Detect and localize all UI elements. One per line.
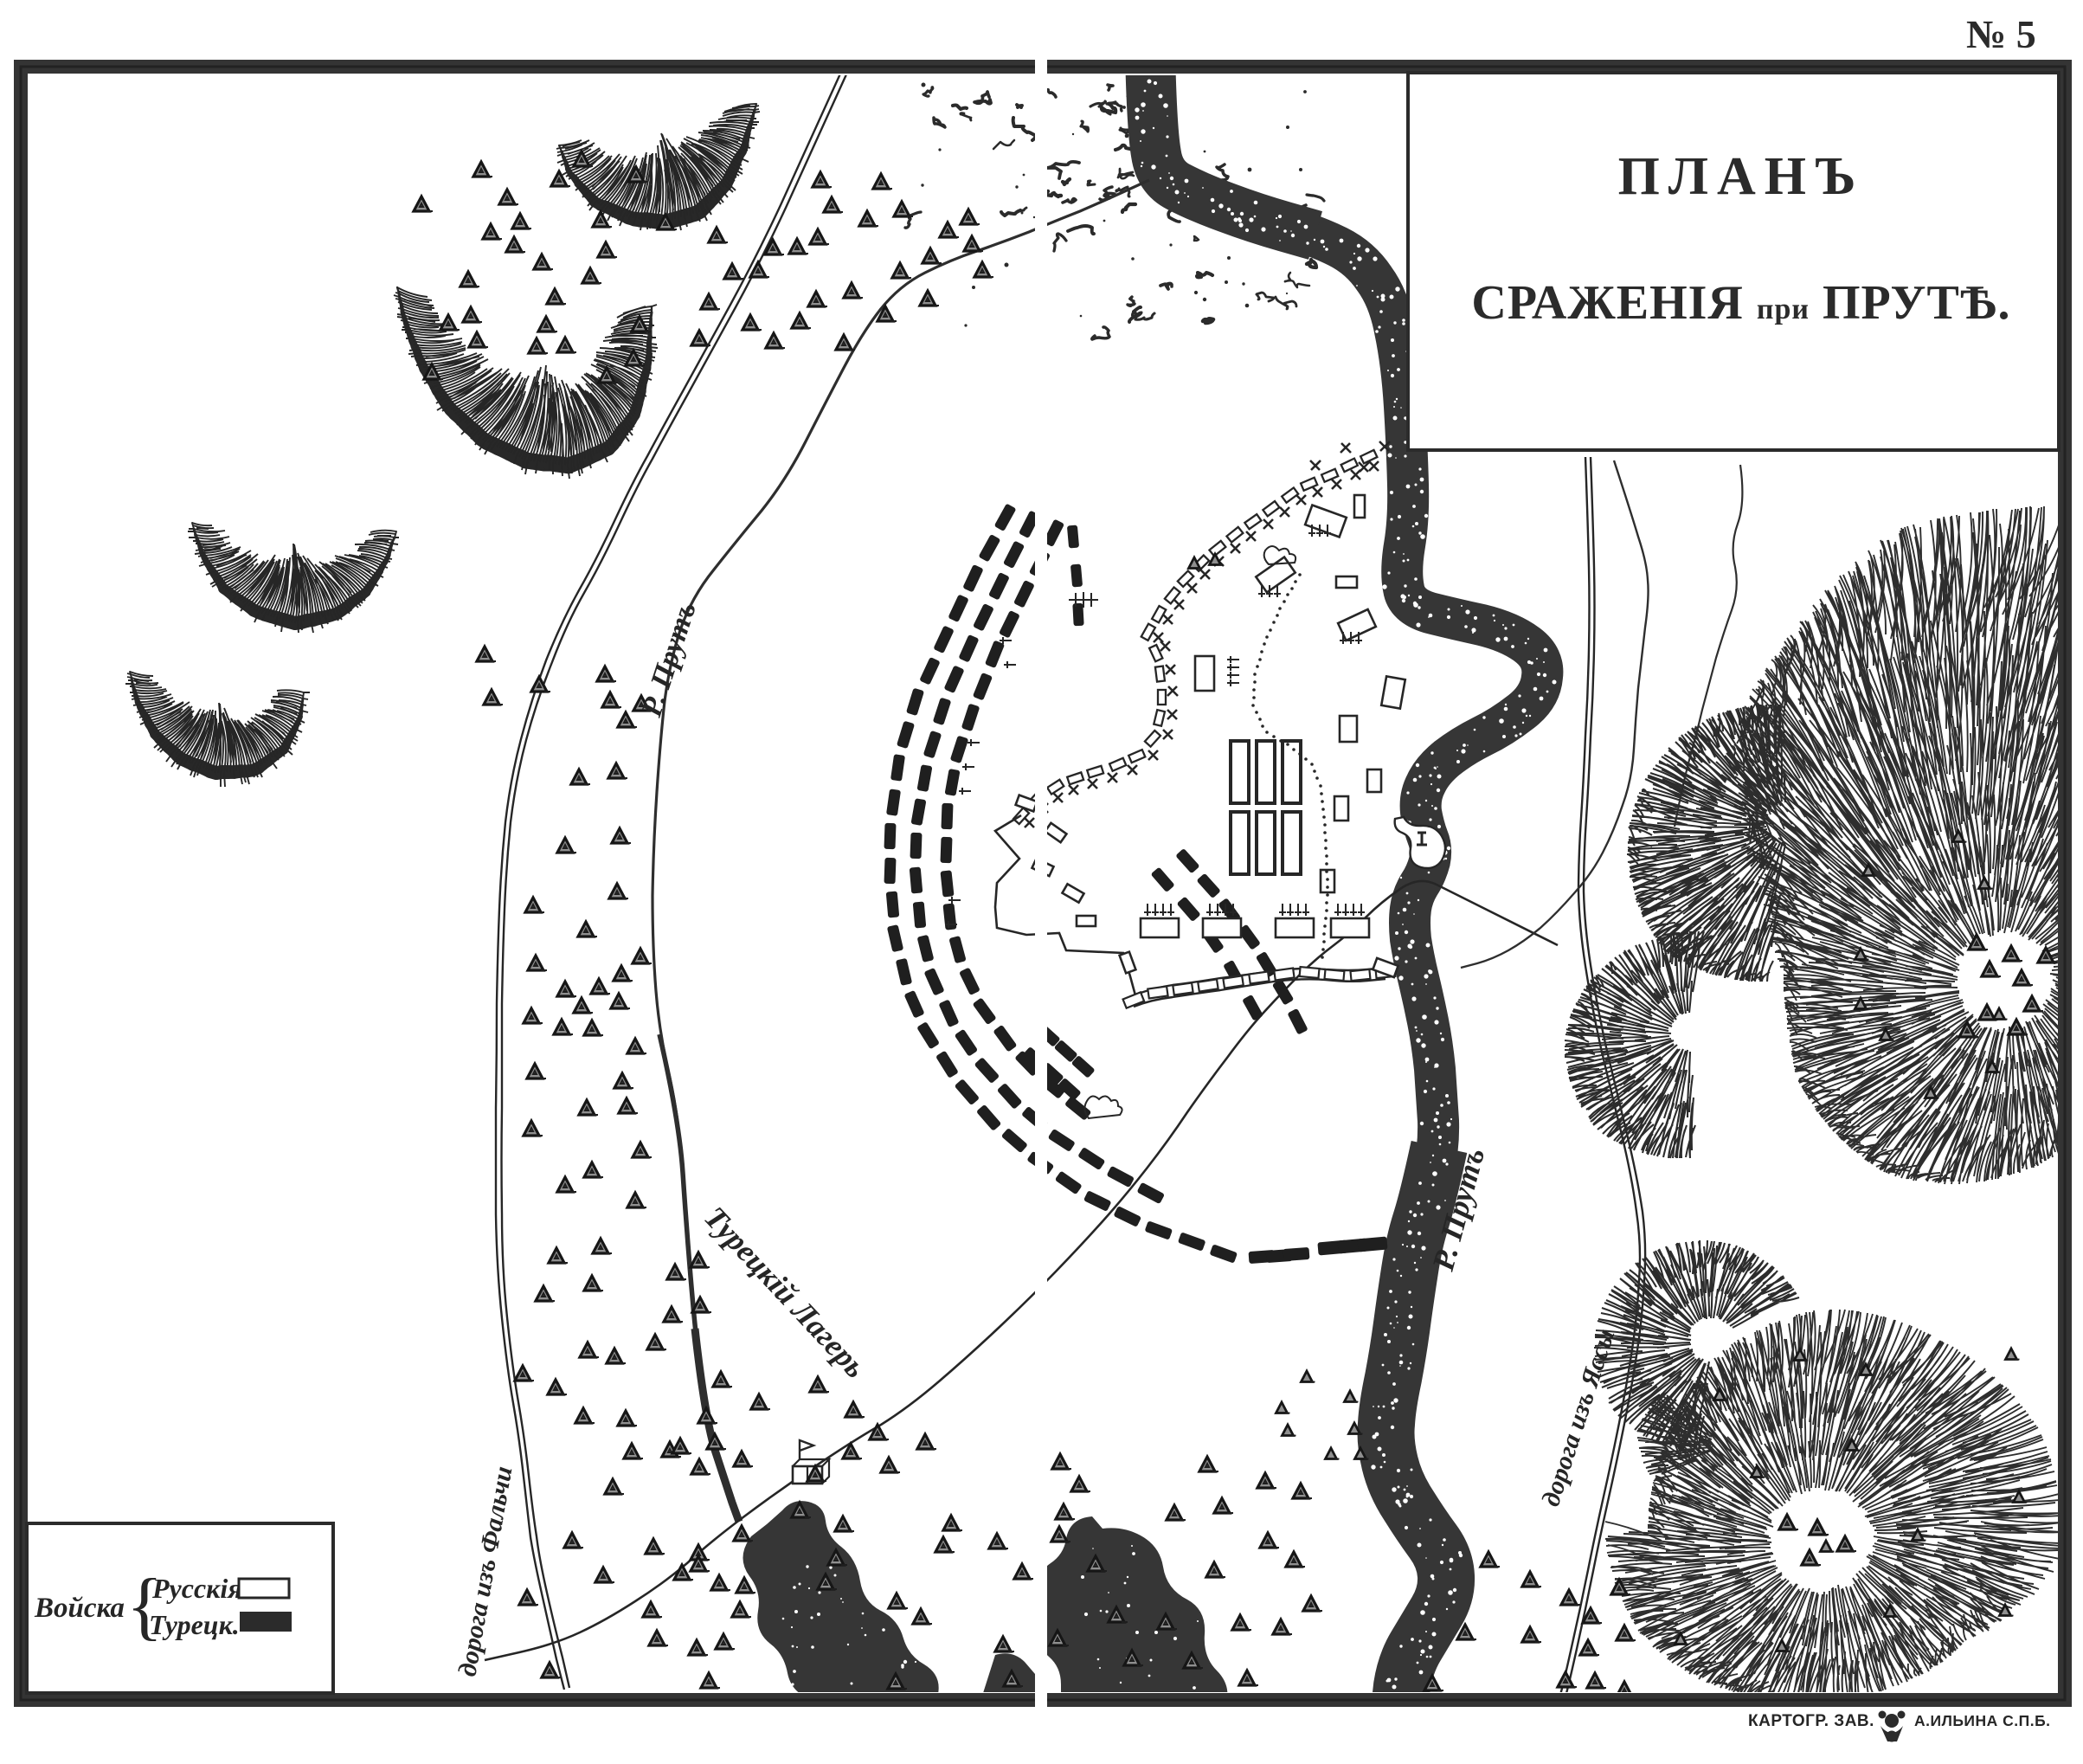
svg-text:СРАЖЕНІЯ при ПРУТѢ.: СРАЖЕНІЯ при ПРУТѢ. [1471, 276, 2010, 330]
svg-text:Войска: Войска [34, 1593, 125, 1624]
svg-text:Русскія: Русскія [151, 1573, 242, 1604]
svg-text:№ 5: № 5 [1966, 12, 2036, 56]
svg-text:ПЛАНЪ: ПЛАНЪ [1618, 147, 1865, 206]
svg-text:А.ИЛЬИНА С.П.Б.: А.ИЛЬИНА С.П.Б. [1914, 1712, 2051, 1729]
svg-text:КАРТОГР. ЗАВ.: КАРТОГР. ЗАВ. [1748, 1712, 1874, 1730]
svg-text:Турецк.: Турецк. [149, 1609, 240, 1640]
